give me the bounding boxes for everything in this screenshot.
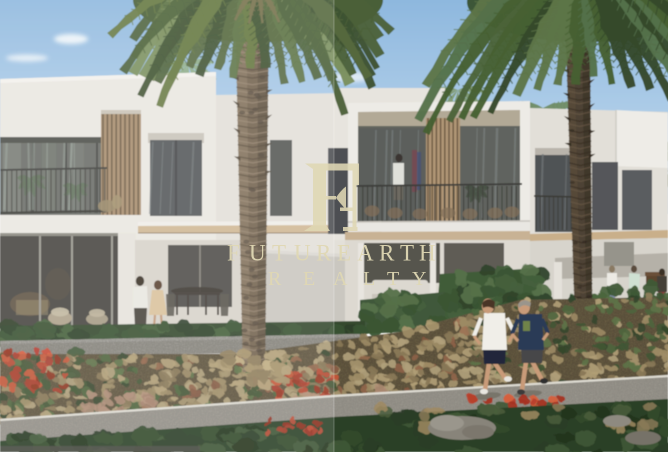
svg-text:FUTUREARTH: FUTUREARTH: [227, 241, 436, 266]
